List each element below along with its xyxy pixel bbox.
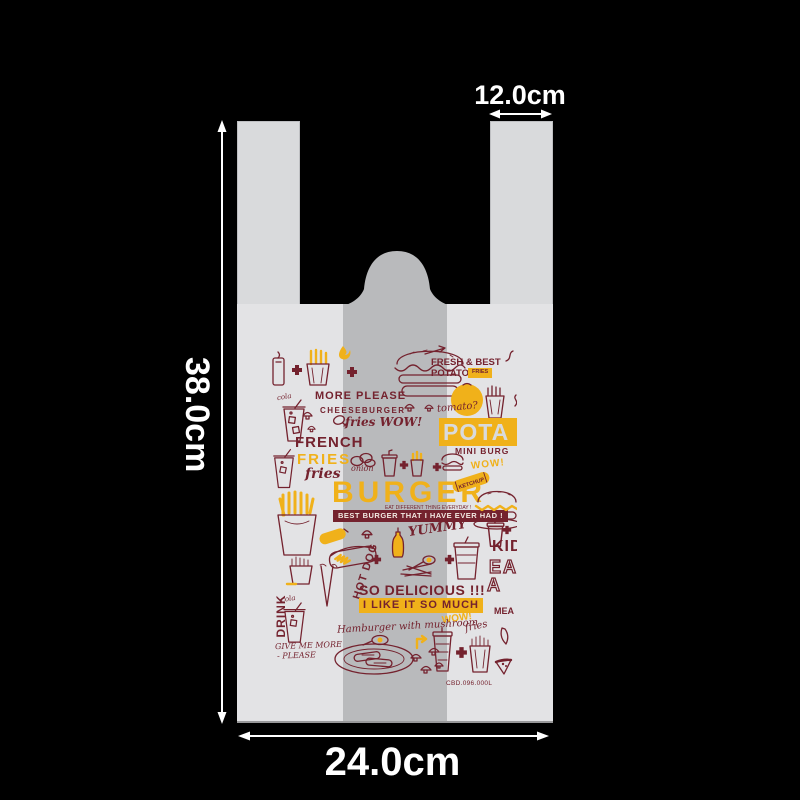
soda-cup-icon (451, 537, 482, 581)
please-text: - PLEASE (277, 651, 316, 660)
fresh-best-text: FRESH & BEST (431, 358, 501, 368)
product-photo: MORE PLEASE CHEESEBURGER fries WOW! FREN… (0, 0, 800, 800)
bag-right-handle (490, 121, 553, 305)
ea-text: A (487, 576, 502, 594)
product-code-text: CBD.096.000L (446, 681, 492, 688)
so-delicious-text: SO DELICIOUS !!! (359, 583, 485, 597)
height-arrow (218, 120, 227, 724)
fries-cup-icon (407, 450, 426, 478)
plus-icon (371, 554, 382, 565)
plus-icon (346, 366, 358, 378)
lighter-icon (270, 349, 287, 388)
pizza-slice-icon (494, 658, 513, 675)
bag-print: MORE PLEASE CHEESEBURGER fries WOW! FREN… (237, 304, 517, 723)
onion-text: onion (351, 465, 374, 473)
plus-icon (444, 554, 455, 565)
dimension-handle-label: 12.0cm (470, 82, 570, 109)
fries-box-icon (464, 634, 495, 674)
pepper-icon (497, 626, 510, 645)
cheeseburger-text: CHEESEBURGER (320, 407, 406, 415)
fries-pile-icon (395, 550, 439, 586)
soda-cup-icon (380, 450, 399, 478)
handle-width-arrow (489, 110, 552, 119)
ea-text: EA (489, 558, 517, 576)
bag-back-tongue (340, 249, 454, 306)
meal-text: MEA (494, 607, 514, 616)
fries-text: FRIES (297, 452, 351, 467)
soda-cup-icon (429, 628, 456, 673)
squiggle-icon (510, 393, 517, 407)
squiggle-icon (504, 349, 516, 363)
more-please-text: MORE PLEASE (315, 391, 406, 402)
flame-icon (336, 345, 351, 362)
dimension-width-label: 24.0cm (300, 742, 485, 782)
pota-text: POTA (443, 421, 509, 444)
soda-glass-icon (271, 447, 296, 491)
mushroom-icon (424, 403, 434, 411)
dimension-height-label: 38.0cm (180, 357, 214, 467)
fries-box-icon (481, 384, 508, 420)
mini-burger-icon (440, 450, 465, 471)
mushroom-icon (404, 402, 415, 411)
fries-script-text: fries (464, 620, 488, 635)
small-fries-icon (284, 554, 317, 586)
sausage-plate-icon (332, 632, 416, 678)
mushroom-icon (307, 424, 316, 432)
potato-text: POTATO (431, 369, 469, 379)
kid-text: KID (492, 539, 517, 555)
fries-box-icon (301, 348, 334, 388)
i-like-it-text: I LIKE IT SO MUCH (359, 598, 483, 613)
potato-chip-label: FRIES (468, 368, 492, 378)
skewer-flag-icon (423, 344, 447, 356)
french-text: FRENCH (295, 435, 364, 450)
cola-glass-icon (281, 602, 307, 644)
plus-icon (502, 525, 512, 535)
big-fries-box-icon (271, 491, 323, 557)
fries-wow-text: fries WOW! (345, 416, 422, 428)
mushroom-icon (302, 410, 313, 419)
bag-left-handle (237, 121, 300, 305)
